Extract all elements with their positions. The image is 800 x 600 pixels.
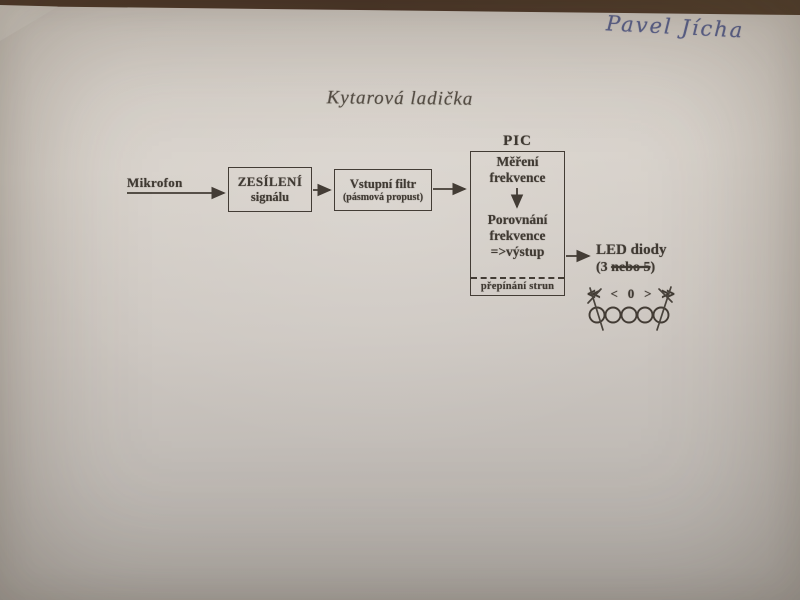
diagram-title: Kytarová ladička [288, 87, 512, 111]
mikrofon-label: Mikrofon [127, 175, 183, 191]
led-circles [590, 308, 669, 323]
led-diodes-label: LED diody [596, 242, 666, 259]
pic-step-compare-line1: Porovnání [488, 212, 548, 228]
led-count-prefix: (3 [596, 260, 611, 275]
led-circle-5 [654, 308, 669, 323]
block-amplifier-line2: signálu [251, 190, 289, 205]
table-edge-background [0, 0, 800, 16]
symbol-sharp: > [644, 286, 651, 302]
led-circle-1 [590, 308, 605, 323]
led-count-struck-text: nebo 5 [611, 260, 650, 275]
block-amplifier: ZESÍLENÍ signálu [228, 167, 312, 212]
led-count-label: (3 nebo 5) [596, 260, 655, 276]
pic-step-measure-line1: Měření [497, 154, 539, 170]
block-amplifier-line1: ZESÍLENÍ [238, 174, 303, 190]
handwritten-name: Pavel Jícha [605, 11, 786, 44]
photo-of-paper: Pavel Jícha Kytarová ladička Mikrofon ZE… [0, 0, 800, 600]
led-count-suffix: ) [650, 260, 655, 275]
block-input-filter-line2: (pásmová propust) [343, 192, 423, 203]
pic-chip-label: PIC [470, 133, 565, 150]
block-input-filter-line1: Vstupní filtr [350, 177, 416, 192]
led-circle-4 [638, 308, 653, 323]
block-input-filter: Vstupní filtr (pásmová propust) [334, 169, 432, 211]
block-pic: Měření frekvence Porovnání frekvence =>v… [470, 151, 565, 296]
symbol-in-tune: 0 [628, 286, 635, 302]
pic-string-switch-label: přepínání strun [471, 277, 564, 295]
led-circle-3 [622, 308, 637, 323]
pic-step-output: =>výstup [491, 244, 545, 260]
symbol-far-flat: ≪ [587, 286, 601, 302]
pic-step-compare-line2: frekvence [490, 228, 546, 244]
led-circle-2 [606, 308, 621, 323]
paper-corner-curl [0, 5, 58, 41]
symbol-flat: < [610, 286, 617, 302]
pic-step-measure-line2: frekvence [490, 170, 546, 186]
symbol-far-sharp: ≫ [661, 286, 675, 302]
tuning-indicator-symbols: ≪ < 0 > ≫ [587, 286, 675, 302]
